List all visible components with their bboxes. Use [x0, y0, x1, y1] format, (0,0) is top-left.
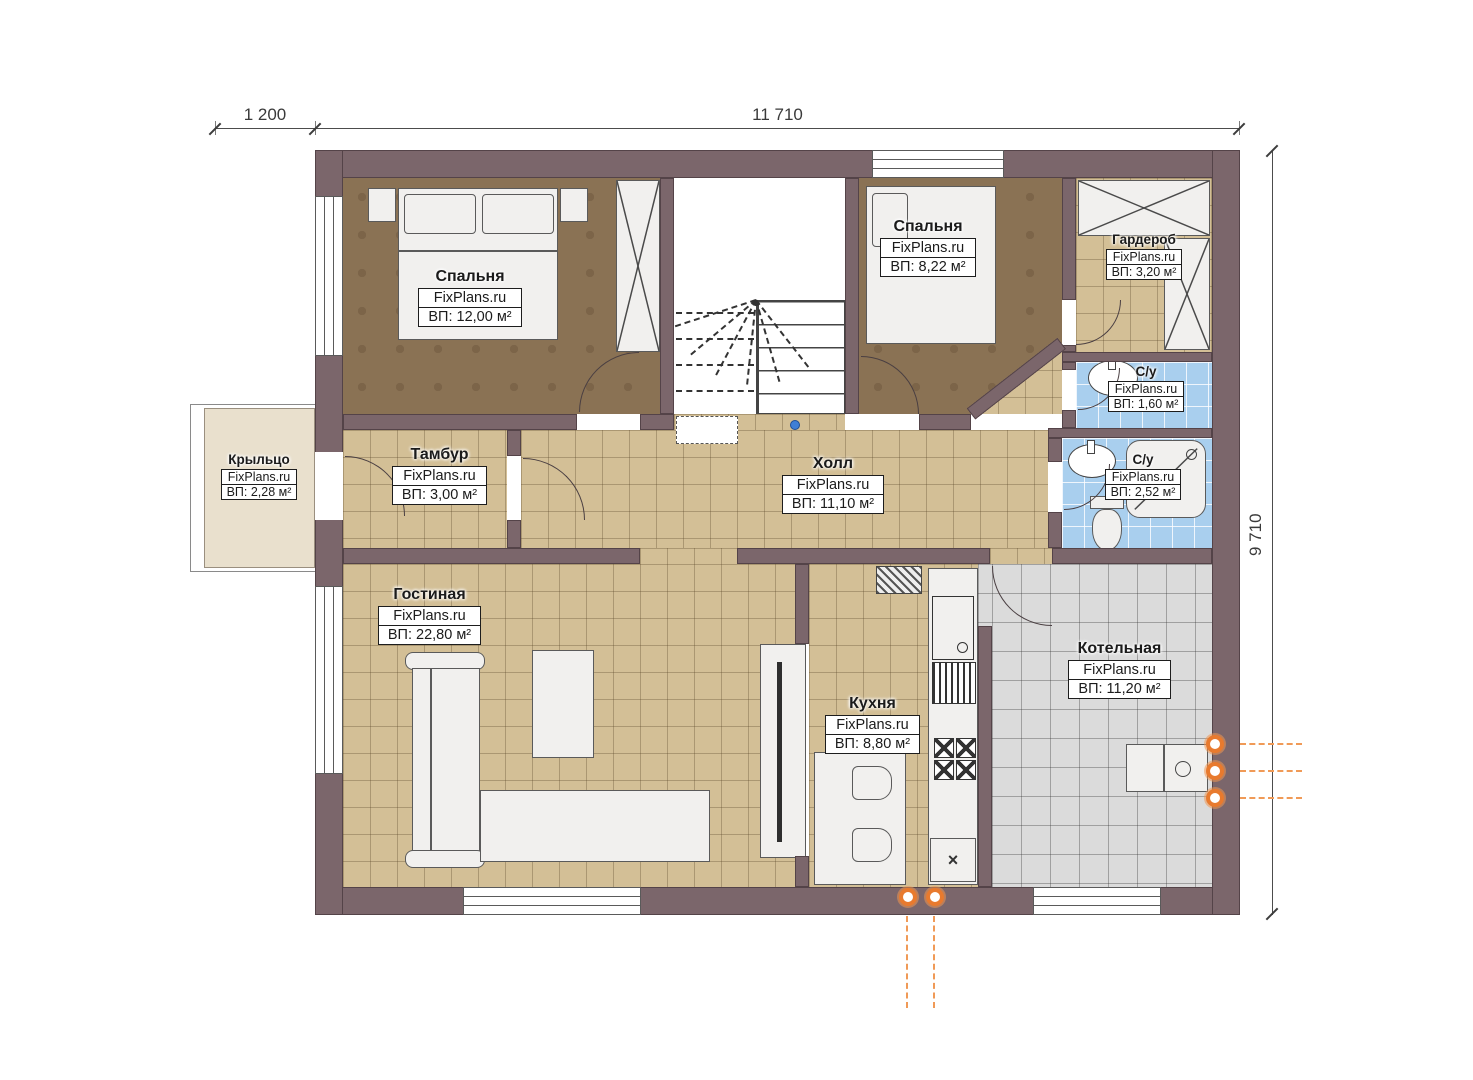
room-area: ВП: 22,80 м²: [379, 625, 480, 644]
room-name: Спальня: [893, 218, 962, 236]
dimension-line-top: [215, 128, 1240, 129]
nightstand: [560, 188, 588, 222]
wall-interior: [845, 178, 859, 414]
watermark: FixPlans.ru: [419, 289, 520, 307]
room-label-boiler: Котельная FixPlans.ru ВП: 11,20 м²: [1042, 640, 1197, 699]
pillow: [482, 194, 554, 234]
wall-outer-top: [315, 150, 1240, 178]
watermark: FixPlans.ru: [826, 716, 919, 734]
pipe-marker-icon: [1206, 789, 1224, 807]
wall-interior: [1048, 512, 1062, 548]
x-mark-icon: [1079, 181, 1209, 235]
toilet-bowl-icon: [1092, 509, 1122, 551]
wall-interior: [1048, 438, 1062, 462]
room-area: ВП: 11,10 м²: [783, 494, 883, 513]
room-label-living: Гостиная FixPlans.ru ВП: 22,80 м²: [352, 586, 507, 645]
wall-interior: [1062, 362, 1076, 370]
wall-interior: [1048, 428, 1212, 438]
window: [315, 586, 343, 774]
entrance-opening: [315, 452, 343, 520]
wall-interior: [1062, 178, 1076, 300]
window: [463, 887, 641, 915]
pipe-dash-line: [1240, 797, 1302, 799]
dimension-label-height: 9 710: [1246, 475, 1266, 595]
room-name: Гардероб: [1112, 232, 1176, 247]
window: [315, 196, 343, 356]
watermark: FixPlans.ru: [1069, 661, 1169, 679]
watermark: FixPlans.ru: [379, 607, 480, 625]
watermark: FixPlans.ru: [881, 239, 974, 257]
stairs-tread-dashed: [676, 338, 754, 340]
dimension-line-right: [1272, 150, 1273, 915]
room-label-kitchen: Кухня FixPlans.ru ВП: 8,80 м²: [800, 695, 945, 754]
blanket-line: [398, 250, 558, 252]
room-area: ВП: 1,60 м²: [1109, 396, 1184, 411]
room-name: Кухня: [849, 695, 896, 713]
stairs-start-dot: [790, 420, 800, 430]
wall-interior: [1052, 548, 1212, 564]
watermark: FixPlans.ru: [783, 476, 883, 494]
room-name: Спальня: [435, 268, 504, 286]
room-area: ВП: 8,22 м²: [881, 257, 974, 276]
wardrobe-cabinet: [616, 180, 660, 352]
wall-interior: [1062, 352, 1212, 362]
wall-interior: [343, 414, 577, 430]
wall-interior: [919, 414, 971, 430]
kitchen-sink-icon: [932, 596, 974, 660]
window: [872, 150, 1004, 178]
pipe-marker-icon: [899, 888, 917, 906]
wall-interior: [1062, 410, 1076, 428]
room-name: С/у: [1135, 364, 1156, 379]
wall-interior: [640, 414, 674, 430]
x-mark-icon: [617, 181, 659, 351]
room-area: ВП: 2,52 м²: [1106, 484, 1181, 499]
room-area: ВП: 3,20 м²: [1107, 264, 1182, 279]
room-label-bedroom-2: Спальня FixPlans.ru ВП: 8,22 м²: [848, 218, 1008, 277]
pipe-marker-icon: [1206, 735, 1224, 753]
room-label-hall: Холл FixPlans.ru ВП: 11,10 м²: [758, 455, 908, 514]
sofa-armrest: [405, 850, 485, 868]
wall-interior: [795, 856, 809, 887]
room-label-porch: Крыльцо FixPlans.ru ВП: 2,28 м²: [200, 452, 318, 500]
stove-burner-icon: [956, 760, 976, 780]
floor-boiler-door-strip: [990, 548, 1052, 564]
wall-interior: [737, 548, 990, 564]
wardrobe-cabinet: [1078, 180, 1210, 236]
watermark: FixPlans.ru: [222, 470, 297, 484]
coffee-table: [532, 650, 594, 758]
pipe-dash-line: [933, 916, 935, 1008]
room-name: Тамбур: [410, 446, 468, 464]
room-name: Крыльцо: [228, 452, 289, 467]
pipe-marker-icon: [926, 888, 944, 906]
dimension-label-width: 11 710: [315, 105, 1240, 125]
dimension-label-porch: 1 200: [215, 105, 315, 125]
wall-interior: [795, 564, 809, 644]
room-area: ВП: 3,00 м²: [393, 485, 486, 504]
stove-burner-icon: [934, 760, 954, 780]
pillow: [404, 194, 476, 234]
stairs-tread-dashed: [676, 390, 754, 392]
room-label-tambour: Тамбур FixPlans.ru ВП: 3,00 м²: [372, 446, 507, 505]
wall-interior: [343, 548, 640, 564]
room-area: ВП: 2,28 м²: [222, 484, 297, 499]
window: [1033, 887, 1161, 915]
watermark: FixPlans.ru: [1106, 470, 1181, 484]
stove-burner-icon: [956, 738, 976, 758]
chair: [852, 766, 892, 800]
pipe-dash-line: [1240, 770, 1302, 772]
wall-interior: [507, 430, 521, 456]
room-label-wardrobe: Гардероб FixPlans.ru ВП: 3,20 м²: [1078, 232, 1210, 280]
stairs-landing: [676, 416, 738, 444]
pipe-dash-line: [1240, 743, 1302, 745]
room-name: Холл: [813, 455, 853, 473]
wall-interior: [507, 520, 521, 548]
watermark: FixPlans.ru: [393, 467, 486, 485]
wall-interior: [660, 178, 674, 414]
room-area: ВП: 12,00 м²: [419, 307, 520, 326]
floor-plan: 1 200 11 710 9 710: [0, 0, 1473, 1080]
room-area: ВП: 11,20 м²: [1069, 679, 1169, 698]
boiler-unit: [1126, 744, 1208, 792]
vent-box: ×: [930, 838, 976, 882]
floor-living-opening: [640, 548, 737, 564]
tv-icon: [777, 662, 782, 842]
chair: [852, 828, 892, 862]
watermark: FixPlans.ru: [1109, 382, 1184, 396]
room-name: С/у: [1132, 452, 1153, 467]
sofa-chaise: [480, 790, 710, 862]
room-label-bedroom-1: Спальня FixPlans.ru ВП: 12,00 м²: [390, 268, 550, 327]
pipe-dash-line: [906, 916, 908, 1008]
room-area: ВП: 8,80 м²: [826, 734, 919, 753]
stairs-stringer: [756, 300, 758, 414]
watermark: FixPlans.ru: [1107, 250, 1182, 264]
sofa-body: [412, 668, 480, 854]
sofa-back-line: [430, 668, 432, 854]
floor-boiler-gap: [978, 564, 992, 626]
pipe-marker-icon: [1206, 762, 1224, 780]
room-name: Гостиная: [393, 586, 465, 604]
nightstand: [368, 188, 396, 222]
kitchen-hood: [876, 566, 922, 594]
room-label-bath-1: С/у FixPlans.ru ВП: 1,60 м²: [1085, 364, 1207, 412]
wall-interior: [978, 626, 992, 887]
room-label-bath-2: С/у FixPlans.ru ВП: 2,52 м²: [1080, 452, 1206, 500]
room-name: Котельная: [1078, 640, 1162, 658]
stairs-tread-dashed: [676, 364, 754, 366]
